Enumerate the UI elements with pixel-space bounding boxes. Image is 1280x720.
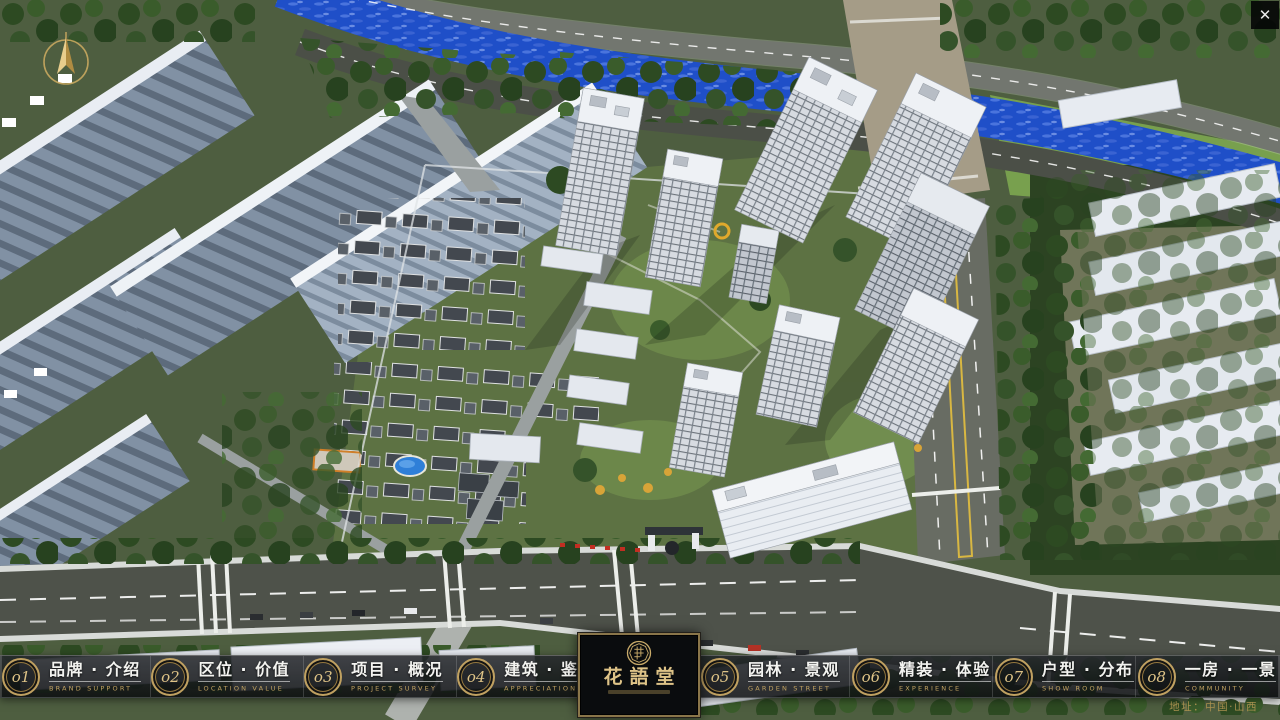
nav-label-zh: 一房 · 一景 [1185,661,1277,682]
nav-number-badge: o8 [1138,658,1176,696]
nav-number-badge: o5 [701,658,739,696]
nav-group-right: o5 园林 · 景观GARDEN STREET o6 精装 · 体验EXPERI… [700,656,1280,697]
nav-item-location-value[interactable]: o2 区位 · 价值LOCATION VALUE [150,656,303,697]
nav-label-en: EXPERIENCE [899,684,961,691]
nav-label-en: COMMUNITY [1185,684,1245,691]
nav-number-badge: o2 [151,658,189,696]
nav-label-zh: 区位 · 价值 [198,661,290,682]
nav-number-badge: o7 [995,658,1033,696]
nav-item-project-survey[interactable]: o3 项目 · 概况PROJECT SURVEY [303,656,456,697]
close-button[interactable]: ✕ [1251,1,1279,29]
nav-item-floorplan-distribution[interactable]: o7 户型 · 分布SHOW ROOM [992,656,1135,697]
nav-label-zh: 项目 · 概况 [351,661,443,682]
nav-item-architecture[interactable]: o4 建筑 · 鉴赏APPRECIATION [456,656,596,697]
nav-label-en: GARDEN STREET [748,684,831,691]
nav-label-en: LOCATION VALUE [198,684,284,691]
project-logo: 花語堂 [578,633,700,717]
logo-seal-icon [626,640,652,666]
project-address: 地址：中国·山西 [1128,699,1258,714]
nav-group-left: o1 品牌 · 介绍BRAND SUPPORT o2 区位 · 价值LOCATI… [0,656,579,697]
nav-item-brand-intro[interactable]: o1 品牌 · 介绍BRAND SUPPORT [1,656,150,697]
nav-number-badge: o3 [304,658,342,696]
nav-number-badge: o1 [2,658,40,696]
nav-number-badge: o4 [457,658,495,696]
presentation-viewport[interactable]: ✕ o1 品牌 · 介绍BRAND SUPPORT o2 区位 · 价值LOCA… [0,0,1280,720]
nav-label-en: PROJECT SURVEY [351,684,437,691]
nav-number-badge: o6 [852,658,890,696]
logo-title: 花語堂 [596,666,681,688]
nav-label-zh: 户型 · 分布 [1042,661,1134,682]
nav-label-en: BRAND SUPPORT [49,684,132,691]
nav-item-room-view[interactable]: o8 一房 · 一景COMMUNITY [1135,656,1279,697]
nav-label-zh: 园林 · 景观 [748,661,840,682]
nav-label-zh: 精装 · 体验 [899,661,991,682]
nav-item-garden-landscape[interactable]: o5 园林 · 景观GARDEN STREET [700,656,849,697]
nav-item-interior-experience[interactable]: o6 精装 · 体验EXPERIENCE [849,656,992,697]
masterplan-3d-view [0,0,1280,720]
logo-subtitle-tagline [608,690,670,694]
nav-label-zh: 品牌 · 介绍 [49,661,141,682]
nav-label-en: APPRECIATION [504,684,577,691]
nav-label-en: SHOW ROOM [1042,684,1105,691]
